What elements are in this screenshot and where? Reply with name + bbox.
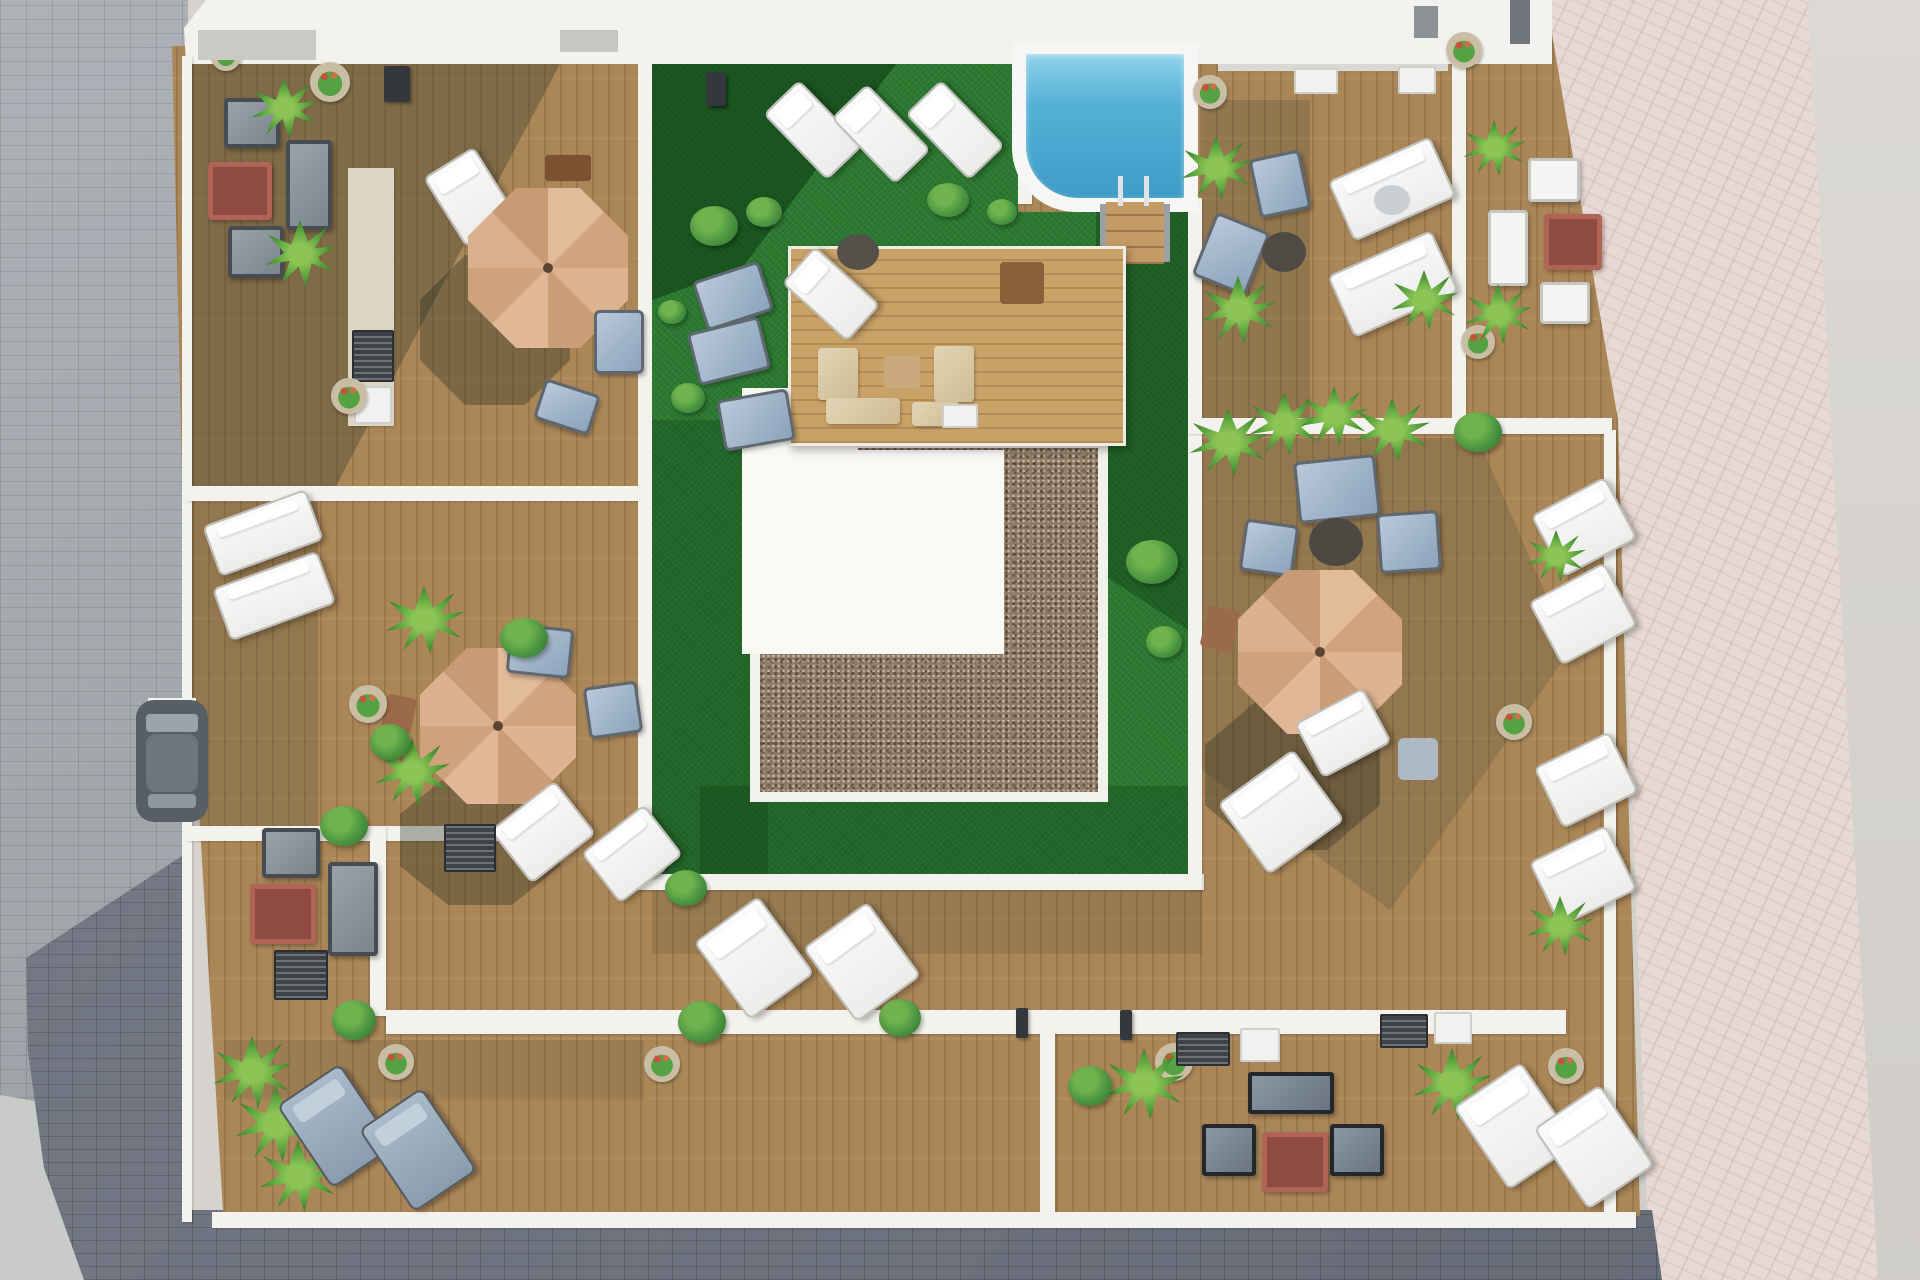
pool-water bbox=[1026, 54, 1184, 198]
firetable-tl bbox=[208, 162, 272, 220]
chair-re-1 bbox=[1528, 158, 1580, 202]
wall-lawn-bottom bbox=[638, 874, 1204, 890]
pot-br bbox=[1548, 1048, 1584, 1084]
pool-step-rail-right bbox=[1164, 204, 1170, 262]
wall-lawn-left bbox=[638, 64, 652, 888]
pot-tr-2 bbox=[1446, 32, 1482, 68]
table-tr-2 bbox=[1374, 185, 1410, 215]
bush-rm-1 bbox=[1454, 412, 1502, 452]
bush-br-1 bbox=[1068, 1066, 1112, 1106]
firetable-re bbox=[1544, 214, 1602, 270]
bush-lawn-3 bbox=[927, 183, 969, 217]
bush-lawn-1 bbox=[690, 206, 738, 246]
pot-rm bbox=[1496, 704, 1532, 740]
platform-sofa-bottom bbox=[826, 398, 900, 424]
bush-lawn-7 bbox=[1126, 540, 1178, 584]
platform-coffee-table bbox=[884, 356, 920, 388]
chair-re-2 bbox=[1540, 282, 1590, 324]
bush-lawn-2 bbox=[746, 197, 782, 227]
ac-unit-1 bbox=[384, 66, 410, 102]
roof-unit-1 bbox=[198, 30, 316, 60]
sofa-bl bbox=[328, 862, 378, 956]
bush-lawn-5 bbox=[671, 383, 705, 413]
roof-unit-4 bbox=[1510, 0, 1530, 44]
bush-bl-1 bbox=[320, 806, 368, 846]
bush-bc-2 bbox=[879, 999, 921, 1037]
grill-lm bbox=[444, 824, 496, 872]
patio-table-tr bbox=[1294, 68, 1338, 94]
roof-unit-3 bbox=[1414, 6, 1438, 38]
firepit-rm bbox=[1309, 518, 1363, 566]
armchair-bl-1 bbox=[262, 828, 320, 878]
bush-bc-3 bbox=[665, 870, 707, 906]
bollard-2 bbox=[1120, 1010, 1132, 1040]
car-windshield bbox=[146, 714, 198, 732]
armchair-br-1 bbox=[1202, 1124, 1256, 1176]
grill-topleft bbox=[352, 330, 394, 382]
grill-bl bbox=[274, 950, 328, 1000]
bench-tl bbox=[545, 155, 591, 181]
bush-lm-1 bbox=[500, 618, 548, 658]
platform-chair-right bbox=[934, 346, 974, 402]
pot-tr-1 bbox=[1193, 75, 1227, 109]
bush-lawn-6 bbox=[658, 300, 686, 324]
wall-left-edge bbox=[182, 56, 192, 1222]
sofa-br bbox=[1248, 1072, 1334, 1114]
shadow-bottom-left bbox=[224, 1040, 644, 1100]
pot-bl bbox=[378, 1044, 414, 1080]
bush-lawn-4 bbox=[987, 199, 1017, 225]
bluesofa-tl bbox=[594, 310, 644, 374]
roof-unit-2 bbox=[560, 30, 618, 52]
pool-ladder-rail-2 bbox=[1144, 176, 1149, 206]
bush-lawn-8 bbox=[1146, 626, 1182, 658]
grill-bc bbox=[1176, 1032, 1230, 1066]
sink-br bbox=[1434, 1012, 1472, 1044]
bollard-1 bbox=[1016, 1008, 1028, 1038]
platform-side-table bbox=[942, 404, 978, 428]
car-roof bbox=[146, 734, 198, 792]
wall-topright-v bbox=[1452, 36, 1466, 420]
platform-sofa-left bbox=[818, 348, 858, 400]
sidetable-rm bbox=[1398, 738, 1438, 780]
bluechair-lm bbox=[583, 680, 644, 739]
patio-chair-tr bbox=[1398, 66, 1436, 94]
pot-bc-1 bbox=[644, 1046, 680, 1082]
pot-lm bbox=[349, 685, 387, 723]
armchair-br-2 bbox=[1330, 1124, 1384, 1176]
rooftop-terrace-rendering bbox=[0, 0, 1920, 1280]
sofa-tl bbox=[286, 140, 332, 230]
grill-br bbox=[1380, 1014, 1428, 1048]
car-rear-window bbox=[148, 794, 196, 808]
armchair-tl-2 bbox=[228, 226, 284, 278]
wall-divider-left-h1 bbox=[186, 486, 648, 501]
sofa-rm bbox=[1293, 454, 1381, 524]
lawn-table-round bbox=[837, 234, 879, 270]
firetable-br bbox=[1262, 1132, 1328, 1192]
ac-unit-2 bbox=[706, 72, 726, 106]
bench-re bbox=[1488, 210, 1528, 286]
platform-table-brown bbox=[1000, 262, 1044, 304]
wall-bottom-edge bbox=[212, 1212, 1636, 1228]
bush-bl-wall bbox=[332, 1000, 376, 1040]
armchair-rm-2 bbox=[1376, 510, 1442, 574]
pot-tl-2 bbox=[331, 378, 367, 414]
wall-bottom-center-v bbox=[1040, 1032, 1055, 1212]
wall-lawn-right bbox=[1188, 198, 1202, 890]
pot-tl-1 bbox=[310, 62, 350, 102]
bush-lm-2 bbox=[370, 724, 410, 760]
firetable-bl bbox=[250, 884, 316, 944]
armchair-rm-1 bbox=[1239, 518, 1300, 577]
hatch-bc bbox=[1240, 1028, 1280, 1062]
table-tr bbox=[1262, 232, 1306, 272]
pool-ladder-rail-1 bbox=[1118, 176, 1123, 206]
bush-bc-1 bbox=[678, 1001, 726, 1043]
